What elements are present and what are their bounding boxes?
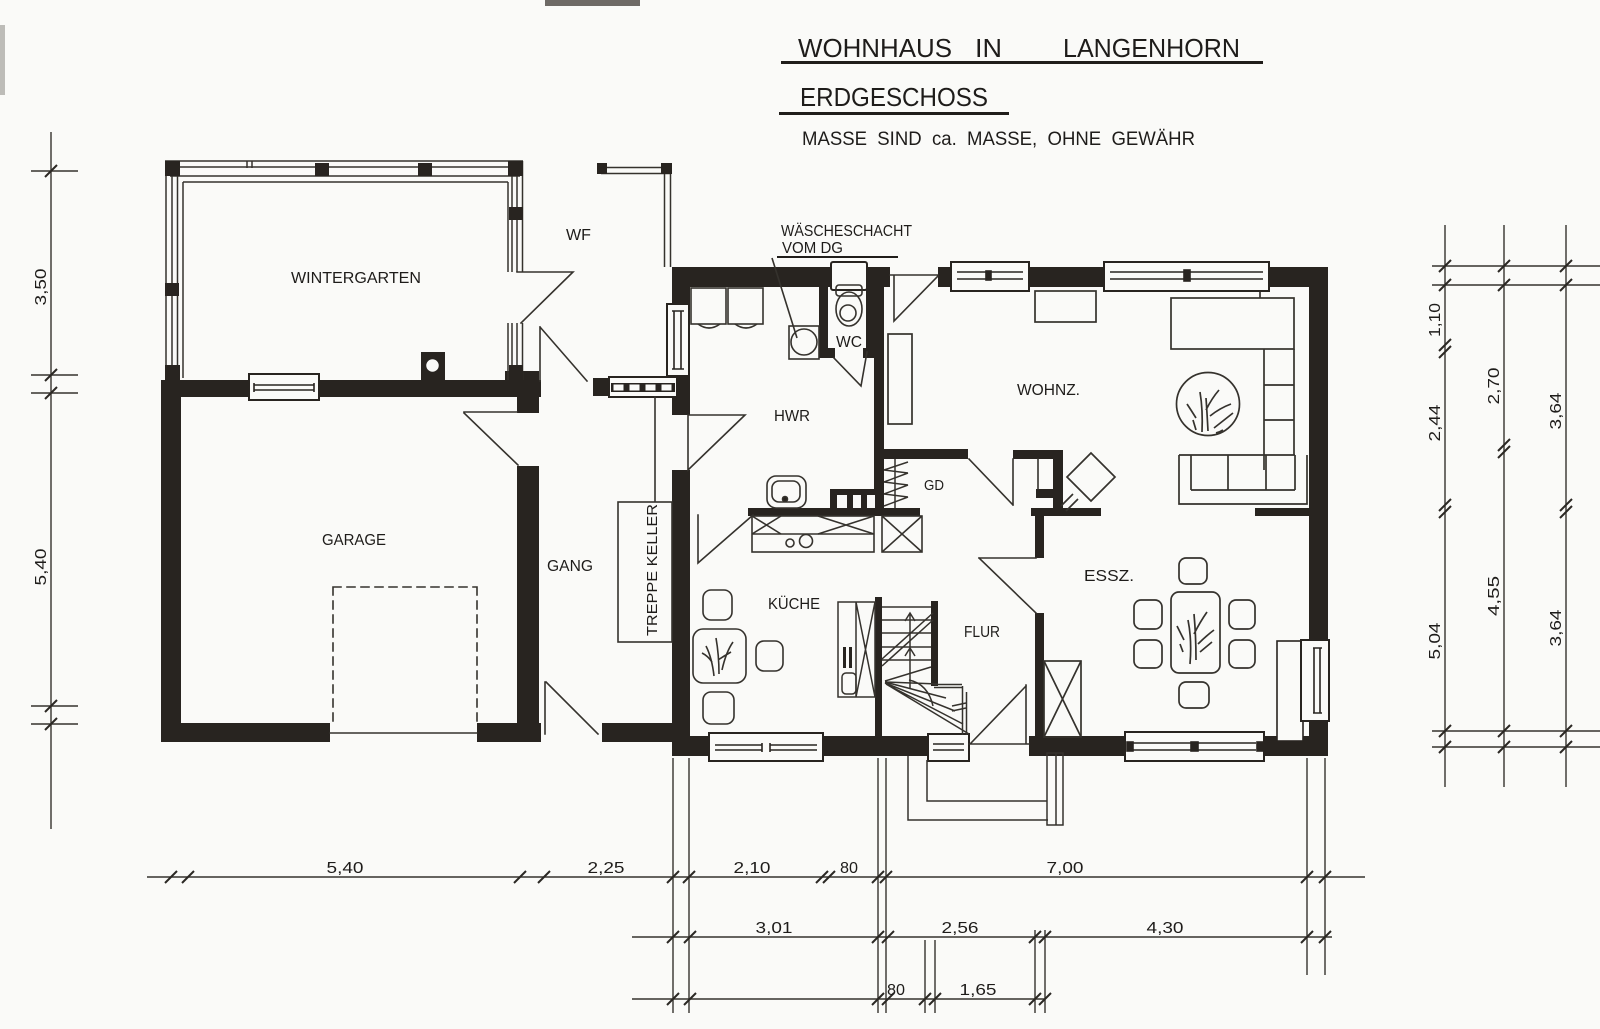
svg-text:3,01: 3,01	[756, 920, 793, 937]
svg-text:GD: GD	[924, 477, 944, 494]
svg-text:GARAGE: GARAGE	[322, 532, 386, 549]
svg-text:WOHNZ.: WOHNZ.	[1017, 382, 1080, 399]
svg-text:KÜCHE: KÜCHE	[768, 595, 820, 613]
svg-text:3,64: 3,64	[1548, 609, 1565, 646]
svg-text:MASSE SIND ca. MASSE, OHNE: MASSE SIND ca. MASSE, OHNE GEWÄHR	[802, 129, 1195, 150]
svg-text:2,25: 2,25	[588, 860, 625, 877]
svg-text:80: 80	[887, 982, 905, 999]
svg-text:5,04: 5,04	[1427, 622, 1444, 659]
svg-text:HWR: HWR	[774, 408, 810, 425]
svg-text:ESSZ.: ESSZ.	[1084, 568, 1134, 585]
svg-text:4,55: 4,55	[1486, 576, 1503, 616]
svg-text:VOM DG: VOM DG	[782, 240, 843, 257]
svg-text:IN: IN	[975, 33, 1002, 63]
svg-text:1,10: 1,10	[1427, 303, 1444, 337]
svg-text:5,40: 5,40	[327, 860, 364, 877]
svg-text:WÄSCHESCHACHT: WÄSCHESCHACHT	[781, 222, 912, 240]
svg-text:FLUR: FLUR	[964, 624, 1000, 641]
svg-text:WF: WF	[566, 227, 591, 244]
svg-text:TREPPE KELLER: TREPPE KELLER	[644, 504, 661, 636]
svg-text:4,30: 4,30	[1147, 920, 1184, 937]
svg-text:GANG: GANG	[547, 558, 593, 575]
svg-text:3,64: 3,64	[1548, 392, 1565, 429]
svg-text:WC: WC	[836, 334, 862, 351]
svg-text:1,65: 1,65	[960, 982, 997, 999]
svg-text:80: 80	[840, 860, 858, 877]
svg-text:3,50: 3,50	[33, 268, 50, 305]
svg-text:2,56: 2,56	[942, 920, 979, 937]
svg-text:2,44: 2,44	[1427, 404, 1444, 441]
svg-text:2,10: 2,10	[734, 860, 771, 877]
svg-text:2,70: 2,70	[1486, 367, 1503, 404]
svg-text:LANGENHORN: LANGENHORN	[1063, 33, 1240, 63]
svg-text:WINTERGARTEN: WINTERGARTEN	[291, 270, 421, 287]
svg-text:WOHNHAUS: WOHNHAUS	[798, 33, 952, 63]
svg-text:5,40: 5,40	[33, 548, 50, 585]
svg-text:7,00: 7,00	[1047, 860, 1084, 877]
svg-text:ERDGESCHOSS: ERDGESCHOSS	[800, 82, 988, 112]
